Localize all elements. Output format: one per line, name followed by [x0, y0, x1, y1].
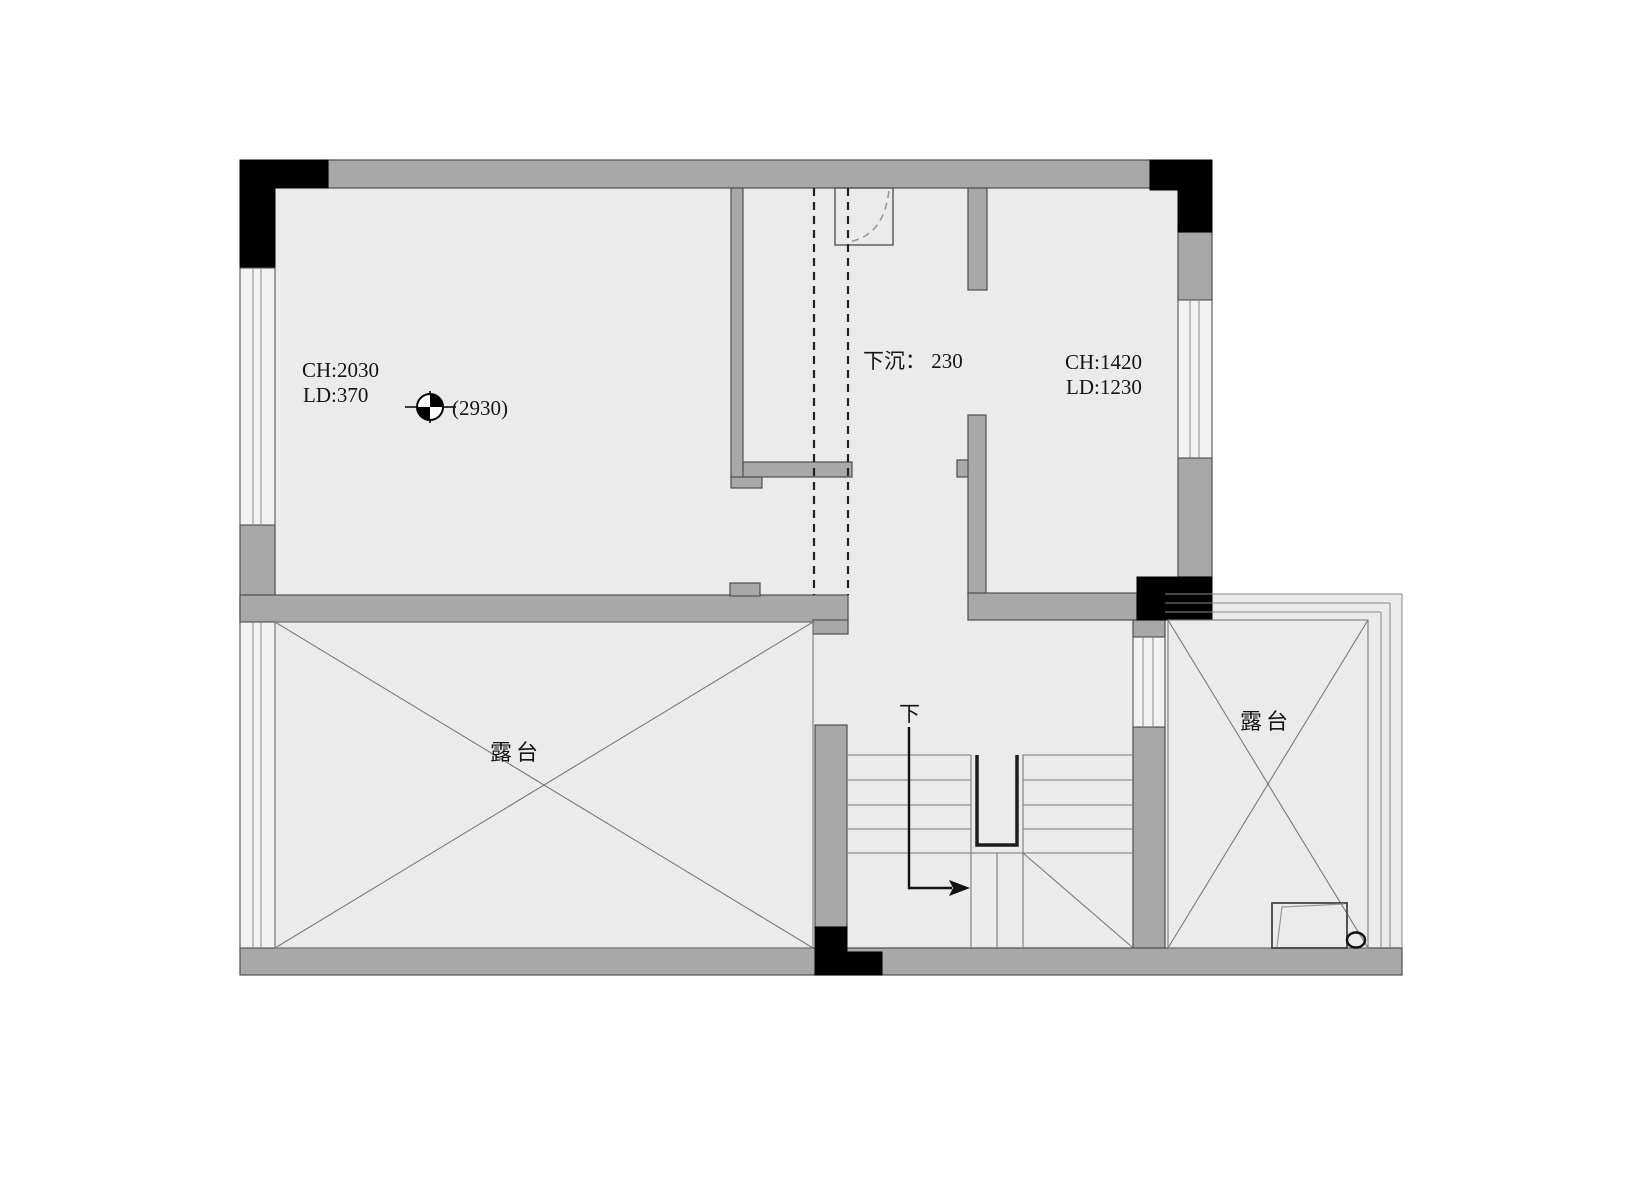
window-right-frame: [1178, 300, 1212, 458]
window-right: [1178, 300, 1212, 458]
column-top-right-v: [1178, 190, 1212, 232]
window-left: [240, 268, 275, 525]
label-room-left-ch: CH:2030: [302, 358, 379, 382]
wall-stair-terrace-upper: [1133, 620, 1165, 637]
column-stair-left-a: [815, 927, 847, 975]
wall-divider-right: [968, 593, 1137, 620]
column-top-right-h: [1150, 160, 1212, 190]
wall-inner-branch: [743, 462, 852, 477]
label-terrace-left: 露台: [490, 740, 542, 765]
column-top-left-h: [240, 160, 328, 188]
wall-right-room-lower: [968, 415, 986, 595]
floor-plan-drawing: CH:2030 LD:370 (2930) 下沉： 230 CH:1420 LD…: [0, 0, 1638, 1194]
wall-right-room-upper: [968, 188, 987, 290]
wall-right-seg2: [1178, 458, 1212, 577]
wall-top: [328, 160, 1150, 188]
label-stair-down: 下: [899, 702, 920, 726]
label-room-left-ld: LD:370: [303, 383, 368, 407]
wall-inner-vertical: [731, 188, 743, 478]
wall-right-seg1: [1178, 232, 1212, 300]
label-room-left-level: (2930): [452, 396, 508, 420]
window-stair-terrace: [1133, 637, 1165, 727]
label-room-right-ld: LD:1230: [1066, 375, 1142, 399]
column-top-left-v: [240, 188, 275, 268]
railing-left-frame: [240, 622, 275, 948]
floor-plan-canvas: CH:2030 LD:370 (2930) 下沉： 230 CH:1420 LD…: [0, 0, 1638, 1194]
wall-right-room-pilaster: [957, 460, 968, 477]
column-stair-left-b: [847, 952, 882, 975]
wall-stair-terrace-lower: [1133, 727, 1165, 948]
window-divider-frame: [1133, 637, 1165, 727]
label-sunken: 下沉： 230: [863, 349, 963, 373]
railing-terrace-left: [240, 622, 275, 948]
label-room-right-ch: CH:1420: [1065, 350, 1142, 374]
interior-main: [240, 160, 1212, 948]
wall-divider-left-end: [813, 620, 848, 634]
label-terrace-right: 露台: [1240, 709, 1292, 734]
column-mid-right: [1137, 577, 1212, 620]
wall-divider-pilaster: [730, 583, 760, 596]
wall-terrace-left-side: [815, 725, 847, 927]
top-shaft: [835, 188, 893, 245]
wall-divider-left: [240, 595, 848, 622]
window-left-frame: [240, 268, 275, 525]
wall-inner-foot: [731, 477, 762, 488]
